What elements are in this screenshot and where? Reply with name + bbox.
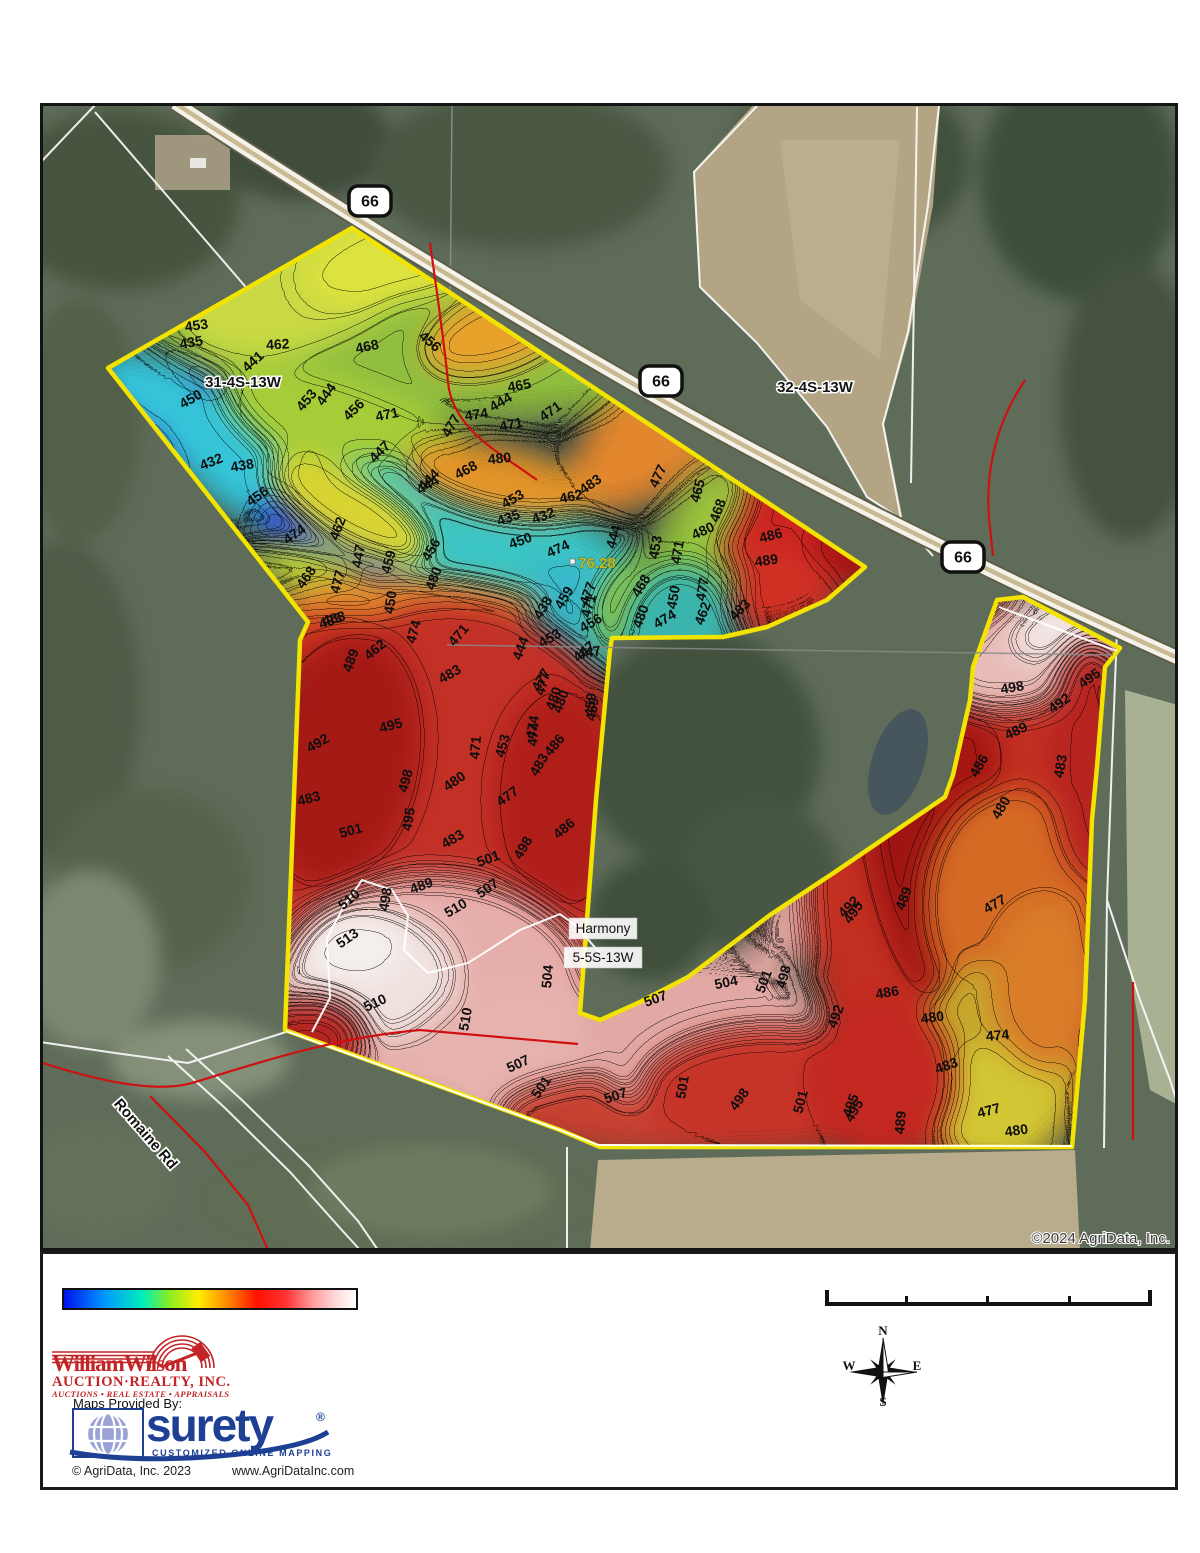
elevation-legend-bar: [62, 1288, 358, 1310]
agridata-url: www.AgriDataInc.com: [232, 1464, 354, 1478]
contour-elevation-label: 489: [891, 1110, 909, 1135]
agridata-copyright: © AgriData, Inc. 2023: [72, 1464, 191, 1478]
contour-elevation-label: 450: [381, 589, 400, 615]
section-label: 32-4S-13W: [777, 379, 854, 396]
section-label: 31-4S-13W: [205, 374, 282, 391]
route-66-shield: 66: [349, 186, 391, 216]
contour-elevation-label: 480: [487, 449, 512, 467]
svg-text:66: 66: [652, 374, 670, 391]
compass-n: N: [878, 1323, 887, 1339]
page: 4534354624414684564504534444564714744774…: [0, 0, 1200, 1553]
surety-logo-name: surety: [146, 1402, 272, 1448]
contour-elevation-label: 480: [920, 1007, 946, 1026]
elevation-point-label: 76.28: [578, 555, 616, 572]
place-label: 5-5S-13W: [573, 950, 634, 965]
place-label: Harmony: [576, 921, 631, 936]
route-66-shield: 66: [942, 542, 984, 572]
william-wilson-line2: AUCTION·REALTY, INC.: [52, 1375, 231, 1390]
contour-elevation-label: 462: [266, 335, 290, 352]
contour-elevation-label: 504: [538, 964, 556, 989]
surety-tagline: CUSTOMIZED ONLINE MAPPING: [152, 1448, 332, 1458]
contour-elevation-label: 480: [1004, 1120, 1030, 1139]
aerial-elevation-map: 4534354624414684564504534444564714744774…: [40, 103, 1178, 1251]
map-copyright: ©2024 AgriData, Inc.: [1031, 1230, 1170, 1247]
compass-w: W: [843, 1358, 856, 1374]
contour-elevation-label: 474: [985, 1026, 1010, 1044]
map-area: 4534354624414684564504534444564714744774…: [40, 103, 1178, 1251]
surety-registered-mark: ®: [316, 1410, 325, 1424]
field-bottom-strip: [590, 1150, 1080, 1251]
contour-elevation-label: 489: [754, 550, 780, 569]
svg-text:66: 66: [361, 194, 379, 211]
contour-elevation-label: 471: [466, 735, 484, 760]
compass-e: E: [913, 1358, 922, 1374]
scale-bar: [825, 1290, 1152, 1306]
contour-elevation-label: 453: [184, 315, 210, 334]
svg-text:66: 66: [954, 550, 972, 567]
william-wilson-name: WilliamWilson: [52, 1352, 186, 1375]
contour-elevation-label: 474: [464, 404, 490, 423]
route-66-shield: 66: [640, 366, 682, 396]
point-marker: [570, 559, 575, 564]
compass-s: S: [879, 1394, 886, 1410]
